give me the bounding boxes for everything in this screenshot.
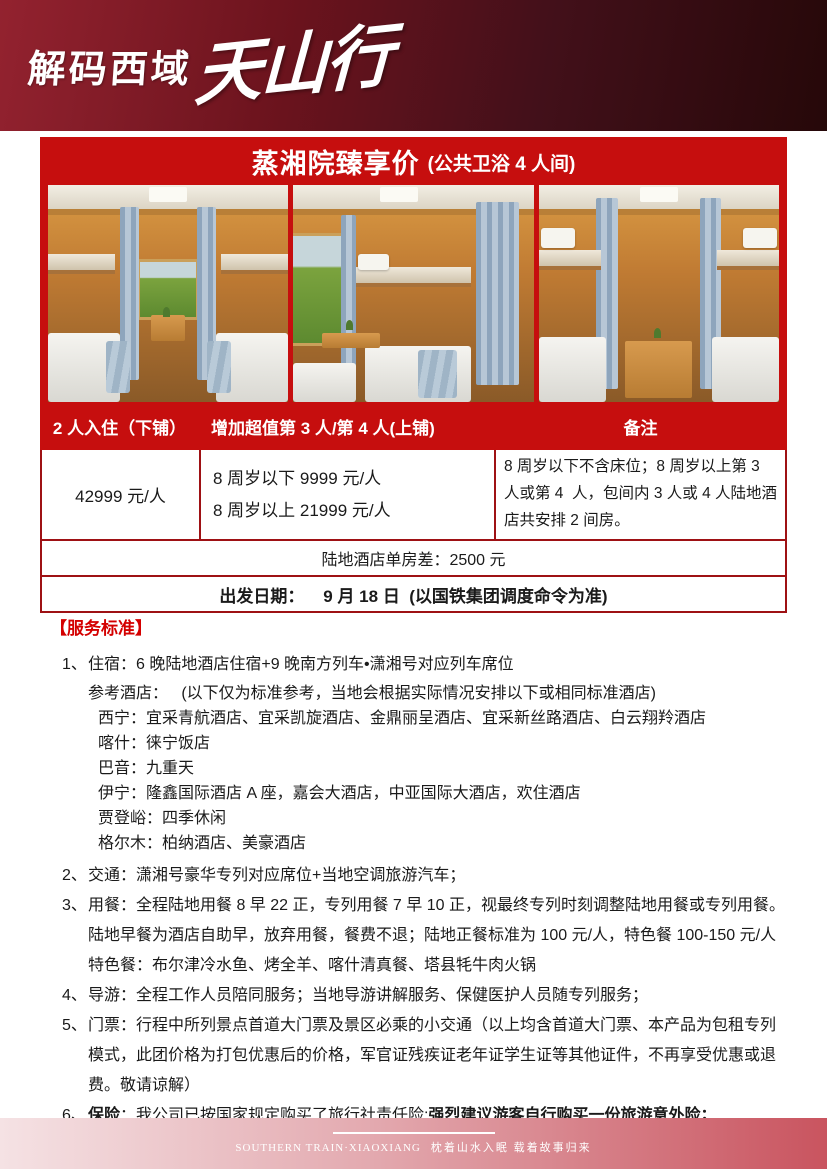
flyer-page: 解码西域 天山行 蒸湘院臻享价 (公共卫浴 4 人间) bbox=[0, 0, 827, 1169]
header-band: 解码西域 天山行 bbox=[0, 0, 827, 131]
hotel-line-kashgar: 喀什：徕宁饭店 bbox=[98, 731, 790, 756]
list-item-meals: 3、用餐：全程陆地用餐 8 早 22 正，专列用餐 7 早 10 正，视最终专列… bbox=[62, 891, 790, 981]
footer-divider-line bbox=[333, 1132, 495, 1134]
reference-hotels-intro: 参考酒店： (以下仅为标准参考，当地会根据实际情况安排以下或相同标准酒店) bbox=[88, 681, 790, 706]
skylight bbox=[380, 187, 418, 202]
bed-foreground bbox=[293, 363, 355, 402]
service-standards-heading: 【服务标准】 bbox=[50, 616, 790, 642]
upper-berth-right bbox=[221, 254, 288, 274]
item-text: 交通：潇湘号豪华专列对应席位+当地空调旅游汽车； bbox=[88, 867, 465, 884]
table-plant bbox=[163, 307, 170, 317]
base-price-cell: 42999 元/人 bbox=[42, 450, 199, 539]
item-number: 5、 bbox=[62, 1011, 87, 1041]
logo-text-script: 天山行 bbox=[193, 21, 392, 110]
list-item-accommodation: 1、住宿：6 晚陆地酒店住宿+9 晚南方列车•潇湘号对应列车席位 bbox=[62, 650, 790, 680]
col-header-extra-person: 增加超值第 3 人/第 4 人(上铺) bbox=[199, 402, 494, 450]
pricing-title-row: 蒸湘院臻享价 (公共卫浴 4 人间) bbox=[40, 137, 787, 185]
hotel-line-yining: 伊宁：隆鑫国际酒店 A 座，嘉会大酒店，中亚国际大酒店，欢住酒店 bbox=[98, 781, 790, 806]
cabin-window bbox=[293, 233, 346, 346]
cabin-photo-gallery bbox=[48, 185, 779, 402]
lower-berth-left bbox=[539, 337, 606, 402]
item-number: 3、 bbox=[62, 891, 87, 921]
window-table bbox=[151, 315, 185, 341]
footer-band: SOUTHERN TRAIN·XIAOXIANG枕着山水入眠 载着故事归来 bbox=[0, 1118, 827, 1169]
upper-berth-right bbox=[717, 250, 779, 270]
upper-berth bbox=[356, 267, 471, 287]
fold-table bbox=[322, 333, 380, 348]
child-price-under8: 8 周岁以下 9999 元/人 bbox=[213, 463, 494, 495]
upper-berth-left bbox=[539, 250, 601, 270]
blanket bbox=[418, 350, 456, 398]
price-table-header: 2 人入住（下铺） 增加超值第 3 人/第 4 人(上铺) 备注 bbox=[40, 402, 787, 450]
item-text: 门票：行程中所列景点首道大门票及景区必乘的小交通（以上均含首道大门票、本产品为包… bbox=[88, 1017, 776, 1094]
child-price-cell: 8 周岁以下 9999 元/人 8 周岁以上 21999 元/人 bbox=[199, 450, 494, 539]
pillow-upper-right bbox=[743, 228, 777, 248]
ceiling-beam bbox=[539, 209, 779, 216]
pricing-block: 蒸湘院臻享价 (公共卫浴 4 人间) bbox=[40, 137, 787, 450]
lower-berth-right bbox=[712, 337, 779, 402]
departure-date-row: 出发日期： 9 月 18 日 (以国铁集团调度命令为准) bbox=[40, 577, 787, 613]
logo-text-main: 解码西域 bbox=[26, 38, 194, 93]
list-item-guide: 4、导游：全程工作人员陪同服务；当地导游讲解服务、保健医护人员随专列服务； bbox=[62, 981, 790, 1011]
item-number: 2、 bbox=[62, 861, 87, 891]
child-price-over8: 8 周岁以上 21999 元/人 bbox=[213, 495, 494, 527]
hotel-line-jiadengyu: 贾登峪：四季休闲 bbox=[98, 806, 790, 831]
footer-slogan: 枕着山水入眠 载着故事归来 bbox=[431, 1142, 592, 1154]
item-text: 用餐：全程陆地用餐 8 早 22 正，专列用餐 7 早 10 正，视最终专列时刻… bbox=[88, 897, 794, 974]
pillow-upper-left bbox=[541, 228, 575, 248]
skylight bbox=[149, 187, 187, 202]
pillow bbox=[358, 254, 389, 269]
hotel-line-bayin: 巴音：九重天 bbox=[98, 756, 790, 781]
cabin-photo-lower-berth-table bbox=[293, 185, 533, 402]
item-text: 住宿：6 晚陆地酒店住宿+9 晚南方列车•潇湘号对应列车席位 bbox=[88, 656, 514, 673]
item-number: 4、 bbox=[62, 981, 87, 1011]
remark-cell: 8 周岁以下不含床位；8 周岁以上第 3 人或第 4 人，包间内 3 人或 4 … bbox=[494, 450, 785, 539]
service-standards-list: 1、住宿：6 晚陆地酒店住宿+9 晚南方列车•潇湘号对应列车席位 参考酒店： (… bbox=[50, 650, 790, 1131]
hotel-line-xining: 西宁：宜采青航酒店、宜采凯旋酒店、金鼎丽呈酒店、宜采新丝路酒店、白云翔羚酒店 bbox=[98, 706, 790, 731]
item-text: 导游：全程工作人员陪同服务；当地导游讲解服务、保健医护人员随专列服务； bbox=[88, 987, 648, 1004]
list-item-tickets: 5、门票：行程中所列景点首道大门票及景区必乘的小交通（以上均含首道大门票、本产品… bbox=[62, 1011, 790, 1101]
table-plant bbox=[654, 328, 661, 338]
reference-hotels-list: 西宁：宜采青航酒店、宜采凯旋酒店、金鼎丽呈酒店、宜采新丝路酒店、白云翔羚酒店 喀… bbox=[98, 706, 790, 856]
blanket-left bbox=[106, 341, 130, 393]
col-header-occupancy: 2 人入住（下铺） bbox=[40, 402, 199, 450]
footer-caption: SOUTHERN TRAIN·XIAOXIANG枕着山水入眠 载着故事归来 bbox=[235, 1139, 591, 1155]
upper-berth-left bbox=[48, 254, 115, 274]
service-standards-section: 【服务标准】 1、住宿：6 晚陆地酒店住宿+9 晚南方列车•潇湘号对应列车席位 … bbox=[50, 616, 790, 1131]
single-supplement-row: 陆地酒店单房差：2500 元 bbox=[40, 541, 787, 577]
cabin-photo-four-berth bbox=[539, 185, 779, 402]
ceiling-beam bbox=[48, 209, 288, 216]
footer-brand: SOUTHERN TRAIN·XIAOXIANG bbox=[235, 1142, 420, 1154]
col-header-remark: 备注 bbox=[494, 402, 787, 450]
berth-curtain bbox=[476, 202, 519, 384]
list-item-transport: 2、交通：潇湘号豪华专列对应席位+当地空调旅游汽车； bbox=[62, 861, 790, 891]
blanket-right bbox=[207, 341, 231, 393]
center-table bbox=[625, 341, 692, 397]
hotel-line-golmud: 格尔木：柏纳酒店、美豪酒店 bbox=[98, 831, 790, 856]
brand-logo: 解码西域 天山行 bbox=[28, 0, 392, 131]
item-number: 1、 bbox=[62, 650, 87, 680]
table-plant bbox=[346, 320, 353, 330]
cabin-photo-bunks-window bbox=[48, 185, 288, 402]
skylight bbox=[640, 187, 678, 202]
pricing-title-sub: (公共卫浴 4 人间) bbox=[428, 149, 576, 176]
price-table-body: 42999 元/人 8 周岁以下 9999 元/人 8 周岁以上 21999 元… bbox=[40, 450, 787, 541]
pricing-title: 蒸湘院臻享价 bbox=[252, 142, 420, 181]
